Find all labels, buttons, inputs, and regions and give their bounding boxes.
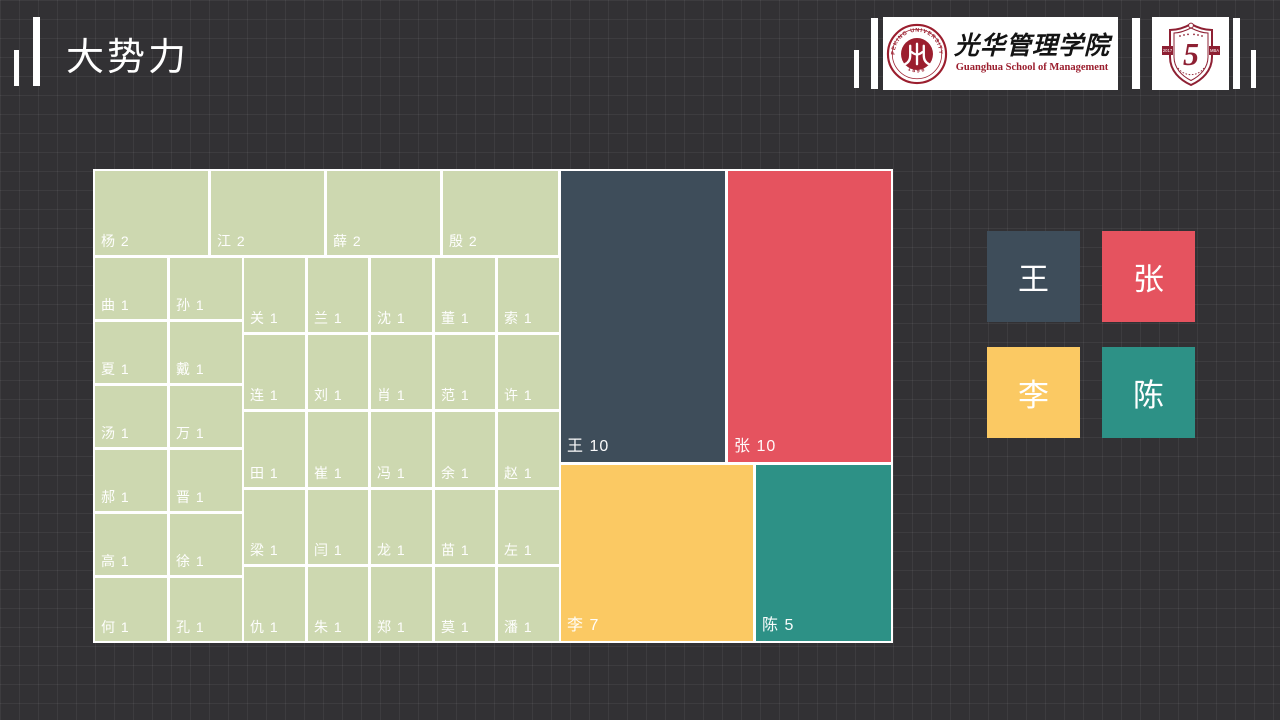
logo-accent-bar [1233, 18, 1240, 89]
treemap-cell-label: 关 1 [250, 308, 279, 328]
treemap-cell-戴: 戴 1 [170, 322, 242, 383]
treemap-cell-label: 孙 1 [176, 295, 205, 315]
treemap-cell-徐: 徐 1 [170, 514, 242, 575]
treemap-cell-label: 余 1 [441, 463, 470, 483]
treemap-cell-label: 龙 1 [377, 540, 406, 560]
treemap-cell-label: 崔 1 [314, 463, 343, 483]
treemap-cell-范: 范 1 [435, 335, 495, 409]
treemap-cell-label: 索 1 [504, 308, 533, 328]
treemap-cell-薛: 薛 2 [327, 171, 440, 255]
treemap-cell-label: 莫 1 [441, 617, 470, 637]
treemap-cell-郝: 郝 1 [95, 450, 167, 511]
treemap-cell-索: 索 1 [498, 258, 559, 332]
treemap-cell-潘: 潘 1 [498, 567, 559, 641]
treemap-cell-殷: 殷 2 [443, 171, 558, 255]
logo-accent-bar [871, 18, 878, 89]
treemap-cell-张: 张 10 [728, 171, 891, 462]
treemap-cell-刘: 刘 1 [308, 335, 368, 409]
treemap-cell-label: 潘 1 [504, 617, 533, 637]
treemap-cell-label: 田 1 [250, 463, 279, 483]
guanghua-logo: PEKING UNIVERSITY 1898 光华管理学院 Guanghua S… [883, 17, 1118, 90]
treemap-cell-label: 殷 2 [449, 231, 478, 251]
treemap-cell-label: 刘 1 [314, 385, 343, 405]
treemap-cell-label: 李 7 [567, 611, 599, 635]
treemap-cell-龙: 龙 1 [371, 490, 432, 564]
guanghua-name-cn: 光华管理学院 [948, 34, 1116, 60]
legend-swatch-陈: 陈 [1102, 347, 1195, 438]
treemap-cell-肖: 肖 1 [371, 335, 432, 409]
treemap-cell-高: 高 1 [95, 514, 167, 575]
title-accent-bar-short [14, 50, 19, 86]
treemap-cell-label: 戴 1 [176, 359, 205, 379]
treemap-cell-田: 田 1 [244, 412, 305, 487]
treemap-cell-label: 徐 1 [176, 551, 205, 571]
treemap-cell-label: 兰 1 [314, 308, 343, 328]
treemap-cell-label: 苗 1 [441, 540, 470, 560]
treemap-cell-label: 范 1 [441, 385, 470, 405]
anniversary-badge: 2017 MBA 5 [1152, 17, 1229, 90]
treemap-legend: 王张李陈 [987, 231, 1195, 438]
treemap-cell-陈: 陈 5 [756, 465, 891, 641]
treemap-cell-孔: 孔 1 [170, 578, 242, 641]
logo-accent-bar [1132, 18, 1140, 89]
treemap-cell-王: 王 10 [561, 171, 725, 462]
treemap-cell-label: 闫 1 [314, 540, 343, 560]
treemap-cell-何: 何 1 [95, 578, 167, 641]
treemap-cell-label: 许 1 [504, 385, 533, 405]
treemap-cell-label: 薛 2 [333, 231, 362, 251]
treemap-cell-兰: 兰 1 [308, 258, 368, 332]
treemap-cell-label: 冯 1 [377, 463, 406, 483]
treemap-cell-label: 连 1 [250, 385, 279, 405]
treemap-cell-郑: 郑 1 [371, 567, 432, 641]
treemap-cell-晋: 晋 1 [170, 450, 242, 511]
logo-accent-bar [854, 50, 859, 88]
treemap-cell-label: 陈 5 [762, 611, 794, 635]
legend-swatch-张: 张 [1102, 231, 1195, 322]
treemap-cell-label: 汤 1 [101, 423, 130, 443]
treemap-cell-label: 沈 1 [377, 308, 406, 328]
treemap-cell-孙: 孙 1 [170, 258, 242, 319]
treemap-cell-label: 高 1 [101, 551, 130, 571]
peking-university-seal-icon: PEKING UNIVERSITY 1898 [886, 23, 948, 85]
treemap-cell-朱: 朱 1 [308, 567, 368, 641]
treemap-cell-仇: 仇 1 [244, 567, 305, 641]
treemap-cell-梁: 梁 1 [244, 490, 305, 564]
treemap-cell-赵: 赵 1 [498, 412, 559, 487]
treemap-cell-闫: 闫 1 [308, 490, 368, 564]
treemap-cell-label: 王 10 [567, 432, 609, 456]
treemap-cell-label: 晋 1 [176, 487, 205, 507]
treemap-cell-label: 郝 1 [101, 487, 130, 507]
treemap-cell-label: 肖 1 [377, 385, 406, 405]
treemap-cell-崔: 崔 1 [308, 412, 368, 487]
treemap-cell-label: 夏 1 [101, 359, 130, 379]
treemap-cell-label: 仇 1 [250, 617, 279, 637]
treemap-cell-杨: 杨 2 [95, 171, 208, 255]
treemap-cell-label: 张 10 [734, 432, 776, 456]
treemap-cell-label: 何 1 [101, 617, 130, 637]
legend-swatch-李: 李 [987, 347, 1080, 438]
treemap-cell-苗: 苗 1 [435, 490, 495, 564]
svg-text:5: 5 [1183, 36, 1199, 72]
treemap-cell-label: 赵 1 [504, 463, 533, 483]
treemap-cell-汤: 汤 1 [95, 386, 167, 447]
anniversary-shield-icon: 2017 MBA 5 [1160, 19, 1222, 89]
treemap-cell-李: 李 7 [561, 465, 753, 641]
logo-accent-bar [1251, 50, 1256, 88]
treemap-cell-label: 梁 1 [250, 540, 279, 560]
treemap-cell-莫: 莫 1 [435, 567, 495, 641]
treemap-cell-label: 孔 1 [176, 617, 205, 637]
title-accent-bar-tall [33, 17, 40, 86]
treemap-cell-左: 左 1 [498, 490, 559, 564]
treemap-cell-江: 江 2 [211, 171, 324, 255]
treemap-cell-label: 董 1 [441, 308, 470, 328]
treemap-cell-许: 许 1 [498, 335, 559, 409]
treemap-cell-label: 杨 2 [101, 231, 130, 251]
treemap-cell-董: 董 1 [435, 258, 495, 332]
treemap-cell-万: 万 1 [170, 386, 242, 447]
treemap-cell-label: 万 1 [176, 423, 205, 443]
treemap-cell-关: 关 1 [244, 258, 305, 332]
treemap-cell-label: 左 1 [504, 540, 533, 560]
treemap-cell-label: 江 2 [217, 231, 246, 251]
treemap-cell-余: 余 1 [435, 412, 495, 487]
treemap-cell-沈: 沈 1 [371, 258, 432, 332]
treemap-cell-label: 曲 1 [101, 295, 130, 315]
treemap-cell-冯: 冯 1 [371, 412, 432, 487]
legend-swatch-王: 王 [987, 231, 1080, 322]
page-title: 大势力 [66, 34, 189, 83]
treemap-chart: 王 10张 10李 7陈 5杨 2江 2薛 2殷 2曲 1孙 1夏 1戴 1汤 … [93, 169, 893, 643]
treemap-cell-label: 朱 1 [314, 617, 343, 637]
treemap-cell-曲: 曲 1 [95, 258, 167, 319]
guanghua-name-en: Guanghua School of Management [948, 62, 1116, 73]
treemap-cell-连: 连 1 [244, 335, 305, 409]
svg-text:2017: 2017 [1162, 48, 1172, 53]
treemap-cell-label: 郑 1 [377, 617, 406, 637]
svg-text:MBA: MBA [1209, 48, 1218, 53]
treemap-cell-夏: 夏 1 [95, 322, 167, 383]
